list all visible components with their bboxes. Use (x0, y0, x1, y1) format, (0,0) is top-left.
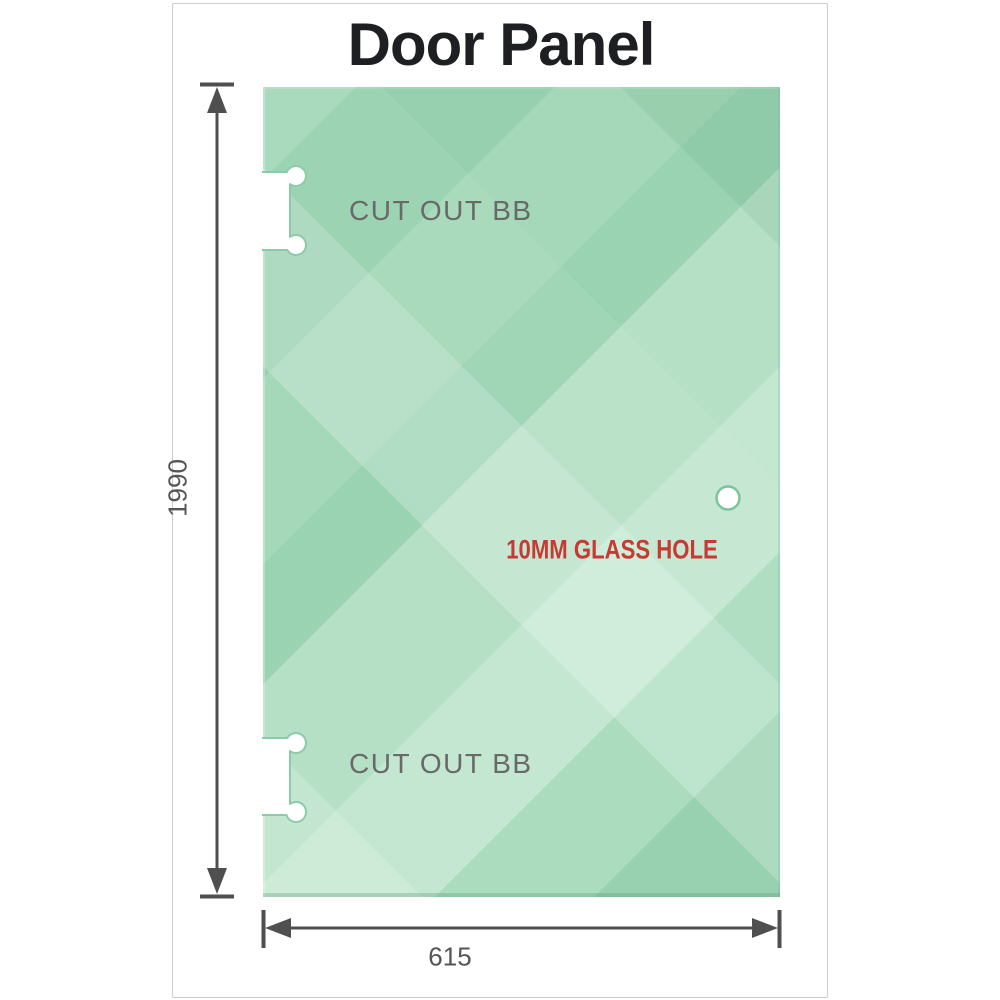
glass-hole-label: 10MM GLASS HOLE (506, 535, 718, 566)
width-dimension-label: 615 (428, 942, 471, 973)
height-dimension-label: 1990 (163, 459, 194, 517)
page-title: Door Panel (348, 10, 655, 79)
cutout-bb-bottom-label: CUT OUT BB (349, 748, 533, 780)
cutout-bb-top-label: CUT OUT BB (349, 195, 533, 227)
diagram-canvas: Door Panel CUT OUT BB CU (0, 0, 1000, 1000)
